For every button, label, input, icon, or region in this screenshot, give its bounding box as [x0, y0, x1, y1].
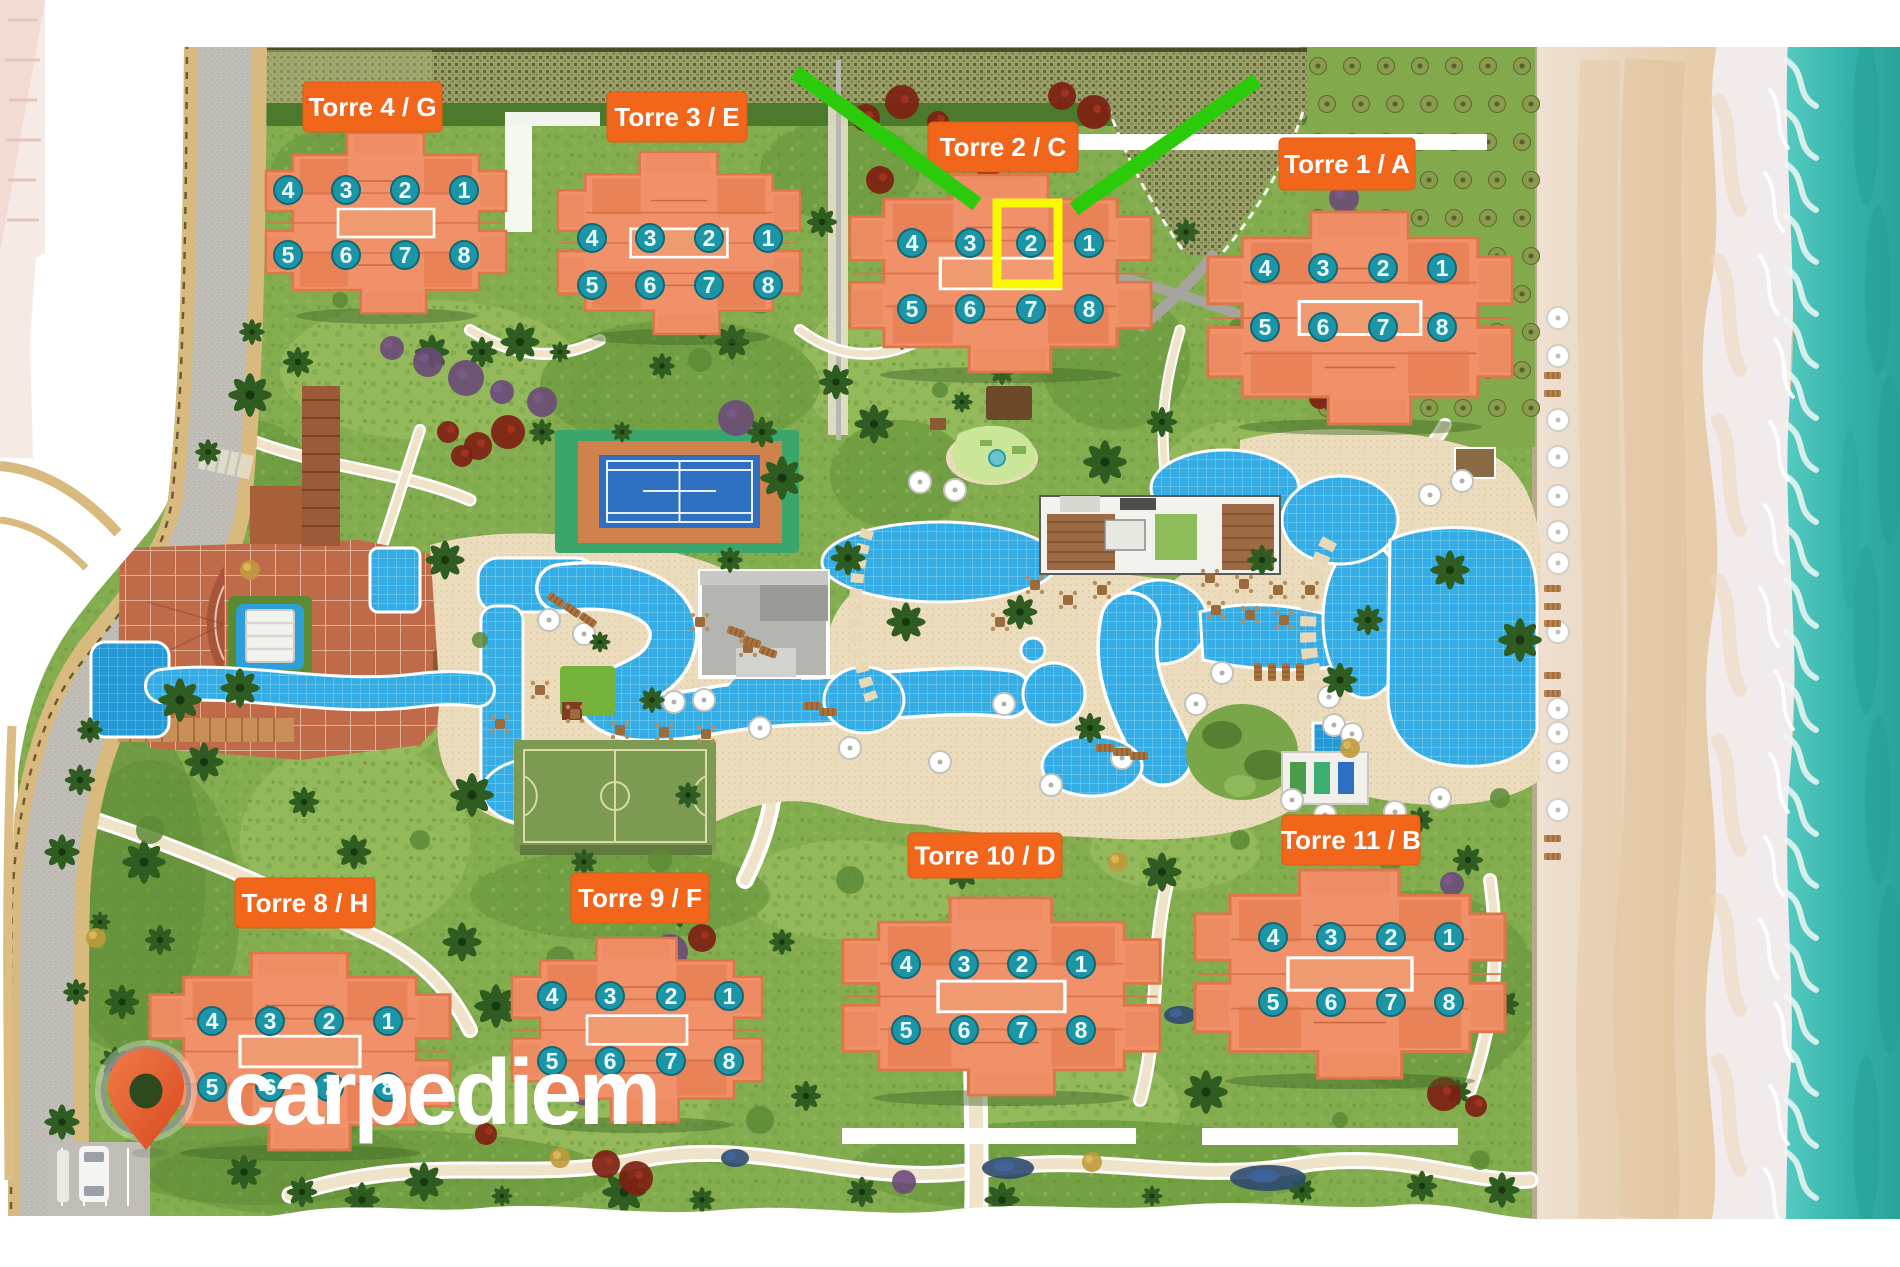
svg-text:6: 6 — [958, 1017, 971, 1043]
svg-text:Torre 2 / C: Torre 2 / C — [940, 132, 1067, 162]
svg-text:3: 3 — [1317, 255, 1330, 281]
svg-text:6: 6 — [340, 242, 353, 268]
svg-text:2: 2 — [323, 1008, 336, 1034]
svg-text:5: 5 — [906, 296, 919, 322]
svg-text:6: 6 — [964, 296, 977, 322]
svg-text:7: 7 — [1385, 989, 1398, 1015]
svg-text:3: 3 — [958, 951, 971, 977]
svg-text:2: 2 — [703, 225, 716, 251]
svg-text:5: 5 — [900, 1017, 913, 1043]
svg-text:carpediem: carpediem — [224, 1040, 658, 1144]
svg-text:6: 6 — [1317, 314, 1330, 340]
svg-text:3: 3 — [604, 983, 617, 1009]
svg-text:4: 4 — [546, 983, 559, 1009]
svg-text:1: 1 — [458, 177, 471, 203]
svg-text:6: 6 — [644, 272, 657, 298]
svg-text:4: 4 — [206, 1008, 219, 1034]
svg-text:3: 3 — [644, 225, 657, 251]
svg-text:1: 1 — [723, 983, 736, 1009]
svg-text:5: 5 — [206, 1074, 219, 1100]
svg-text:5: 5 — [282, 242, 295, 268]
svg-text:2: 2 — [1016, 951, 1029, 977]
svg-text:5: 5 — [1259, 314, 1272, 340]
svg-text:1: 1 — [1443, 924, 1456, 950]
svg-text:Torre 1 / A: Torre 1 / A — [1284, 149, 1410, 179]
svg-text:Torre 4 / G: Torre 4 / G — [308, 92, 436, 122]
svg-text:1: 1 — [1083, 230, 1096, 256]
svg-text:4: 4 — [1267, 924, 1280, 950]
svg-text:3: 3 — [964, 230, 977, 256]
svg-text:Torre 10 / D: Torre 10 / D — [914, 841, 1055, 871]
svg-text:7: 7 — [1025, 296, 1038, 322]
svg-text:4: 4 — [586, 225, 599, 251]
svg-text:1: 1 — [762, 225, 775, 251]
svg-text:2: 2 — [665, 983, 678, 1009]
svg-text:6: 6 — [1325, 989, 1338, 1015]
svg-text:7: 7 — [1016, 1017, 1029, 1043]
svg-text:7: 7 — [1377, 314, 1390, 340]
svg-text:Torre 9 / F: Torre 9 / F — [578, 883, 702, 913]
svg-text:8: 8 — [1436, 314, 1449, 340]
svg-text:7: 7 — [703, 272, 716, 298]
svg-text:4: 4 — [900, 951, 913, 977]
svg-text:1: 1 — [1075, 951, 1088, 977]
svg-text:2: 2 — [1385, 924, 1398, 950]
svg-text:3: 3 — [340, 177, 353, 203]
svg-text:4: 4 — [906, 230, 919, 256]
svg-text:Torre 8 / H: Torre 8 / H — [242, 888, 369, 918]
svg-text:3: 3 — [1325, 924, 1338, 950]
svg-text:Torre 3 / E: Torre 3 / E — [614, 102, 739, 132]
svg-text:5: 5 — [1267, 989, 1280, 1015]
svg-text:8: 8 — [1443, 989, 1456, 1015]
svg-text:7: 7 — [399, 242, 412, 268]
svg-text:3: 3 — [264, 1008, 277, 1034]
svg-text:8: 8 — [1075, 1017, 1088, 1043]
svg-text:1: 1 — [1436, 255, 1449, 281]
svg-text:2: 2 — [399, 177, 412, 203]
svg-text:8: 8 — [762, 272, 775, 298]
svg-text:4: 4 — [1259, 255, 1272, 281]
svg-text:2: 2 — [1377, 255, 1390, 281]
svg-text:Torre 11 / B: Torre 11 / B — [1281, 825, 1421, 855]
svg-text:8: 8 — [723, 1048, 736, 1074]
svg-text:8: 8 — [458, 242, 471, 268]
svg-text:8: 8 — [1083, 296, 1096, 322]
svg-text:2: 2 — [1025, 230, 1038, 256]
svg-text:5: 5 — [586, 272, 599, 298]
svg-text:1: 1 — [382, 1008, 395, 1034]
svg-text:7: 7 — [665, 1048, 678, 1074]
svg-text:4: 4 — [282, 177, 295, 203]
